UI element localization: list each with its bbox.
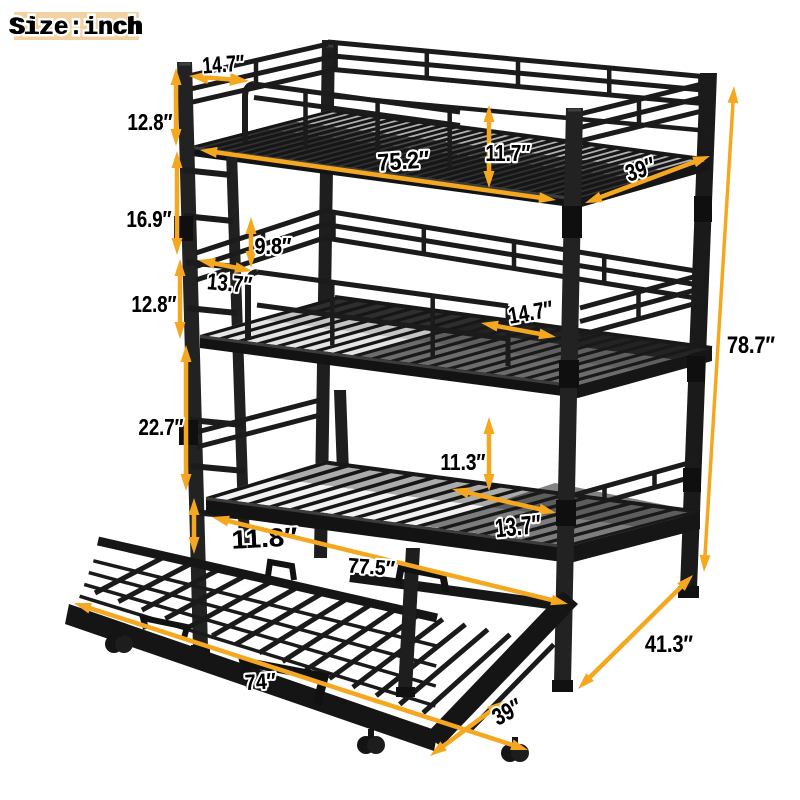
svg-text:12.8″: 12.8″ bbox=[128, 109, 173, 135]
svg-text:13.7″: 13.7″ bbox=[494, 509, 543, 544]
svg-text:75.2″: 75.2″ bbox=[377, 146, 431, 177]
svg-text:9.8″: 9.8″ bbox=[255, 233, 292, 259]
svg-text:14.7″: 14.7″ bbox=[202, 50, 246, 79]
svg-text:41.3″: 41.3″ bbox=[645, 631, 693, 658]
svg-text:74″: 74″ bbox=[244, 668, 277, 695]
svg-text:11.7″: 11.7″ bbox=[486, 140, 531, 166]
svg-text:78.7″: 78.7″ bbox=[727, 332, 775, 359]
svg-text:11.3″: 11.3″ bbox=[441, 449, 486, 475]
svg-text:Size:inch: Size:inch bbox=[11, 15, 141, 42]
svg-text:22.7″: 22.7″ bbox=[139, 414, 184, 440]
svg-text:13.7″: 13.7″ bbox=[206, 268, 253, 298]
svg-text:77.5″: 77.5″ bbox=[347, 554, 395, 580]
svg-text:12.8″: 12.8″ bbox=[132, 291, 177, 317]
svg-text:39″: 39″ bbox=[488, 693, 528, 731]
svg-text:16.9″: 16.9″ bbox=[127, 206, 172, 232]
